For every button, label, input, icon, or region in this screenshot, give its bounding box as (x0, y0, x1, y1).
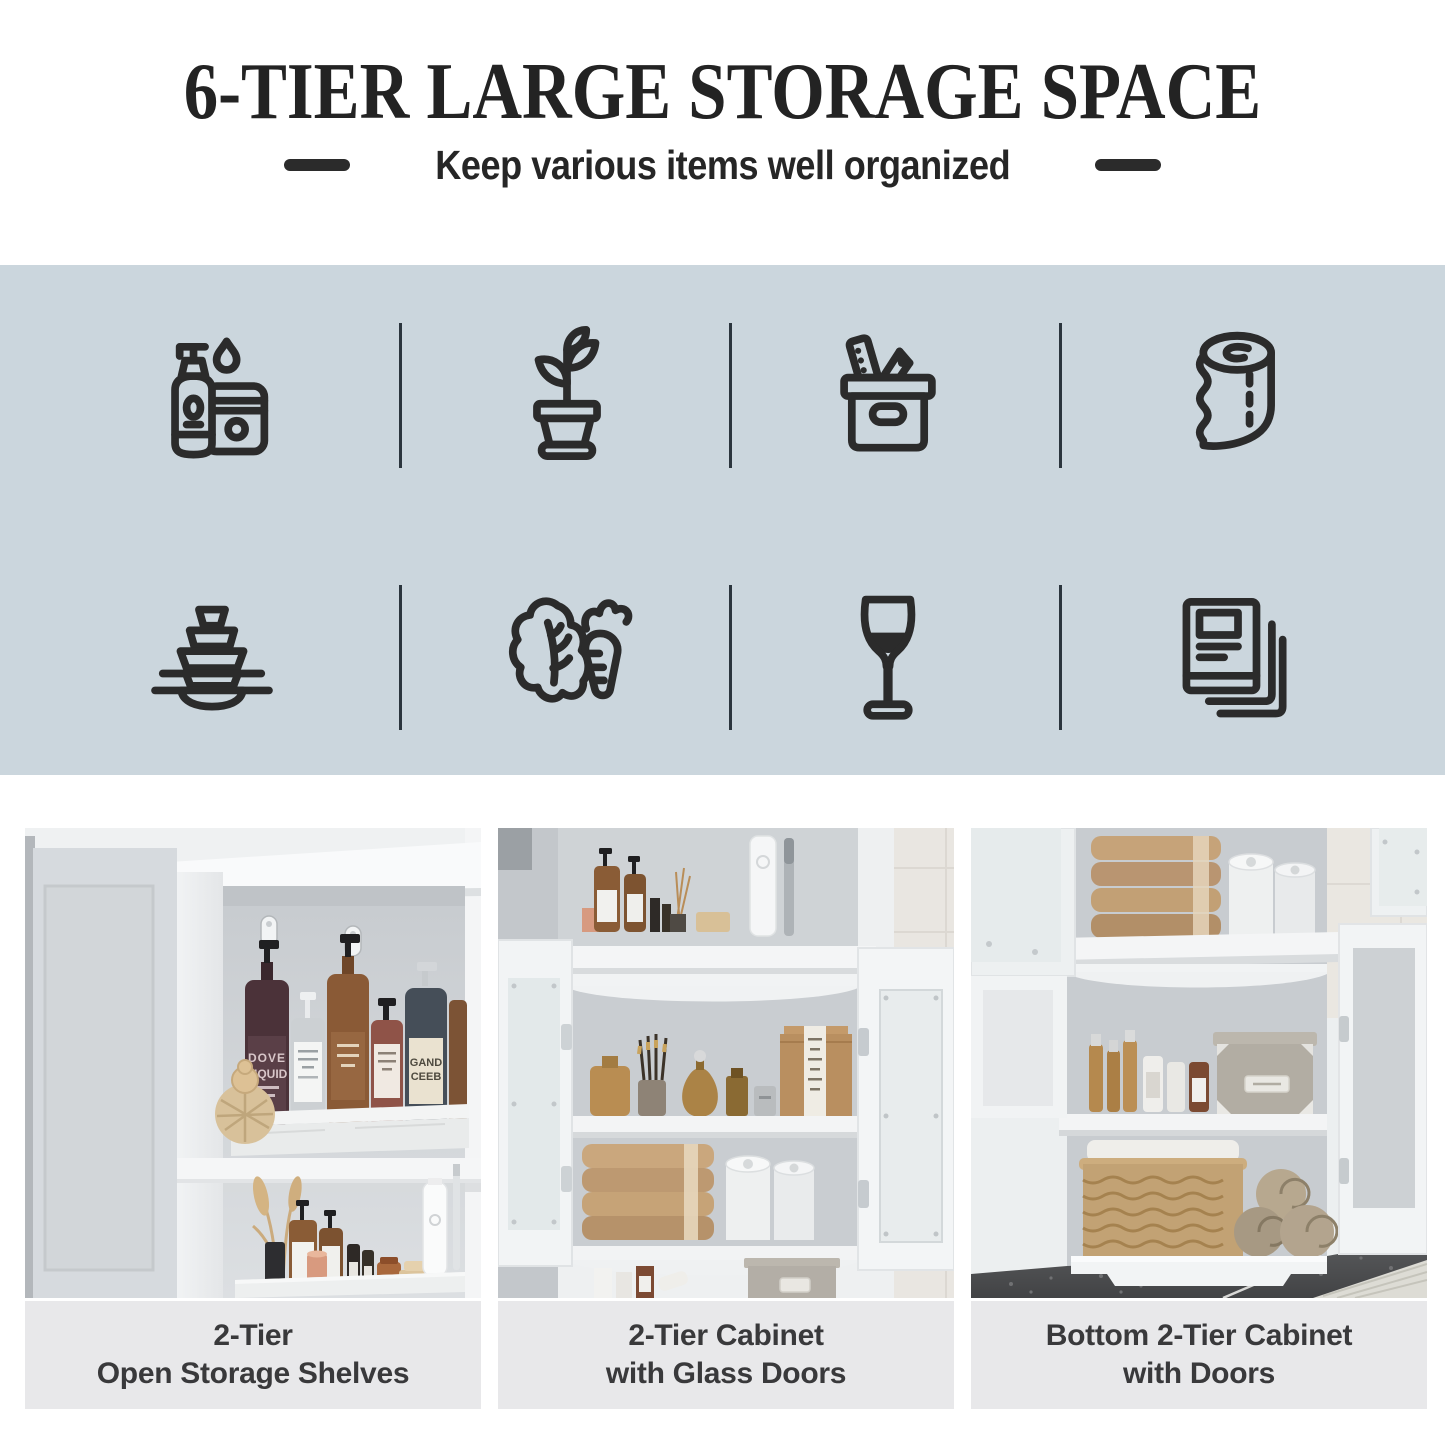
gallery-card-open-shelves: DOVE LIQUID GAND (25, 828, 481, 1409)
column-divider (1059, 323, 1062, 468)
dishes-icon (135, 578, 289, 732)
caption-line: 2-Tier Cabinet (498, 1317, 954, 1355)
column-divider (1059, 585, 1062, 730)
header: 6-TIER LARGE STORAGE SPACE Keep various … (0, 0, 1445, 265)
photo-caption: 2-Tier Cabinet with Glass Doors (498, 1301, 954, 1409)
svg-text:CEEB: CEEB (411, 1071, 442, 1083)
photo-open-storage-shelves: DOVE LIQUID GAND (25, 828, 481, 1298)
svg-text:GAND: GAND (410, 1057, 442, 1069)
caption-line: with Doors (971, 1355, 1427, 1393)
caption-line: 2-Tier (25, 1317, 481, 1355)
wine-glass-icon (811, 578, 965, 732)
gallery-card-glass-doors: 2-Tier Cabinet with Glass Doors (498, 828, 954, 1409)
caption-line: with Glass Doors (498, 1355, 954, 1393)
gallery-card-bottom-cabinet: Bottom 2-Tier Cabinet with Doors (971, 828, 1427, 1409)
photo-bottom-cabinet-doors (971, 828, 1427, 1298)
caption-line: Bottom 2-Tier Cabinet (971, 1317, 1427, 1355)
vegetables-icon (490, 578, 644, 732)
column-divider (399, 585, 402, 730)
photo-caption: Bottom 2-Tier Cabinet with Doors (971, 1301, 1427, 1409)
toilet-paper-icon (1151, 316, 1305, 470)
photo-caption: 2-Tier Open Storage Shelves (25, 1301, 481, 1409)
toiletries-icon (135, 316, 289, 470)
column-divider (399, 323, 402, 468)
column-divider (729, 585, 732, 730)
page-title: 6-TIER LARGE STORAGE SPACE (184, 50, 1261, 134)
feature-icon-band (0, 265, 1445, 775)
potted-plant-icon (490, 316, 644, 470)
page-subtitle: Keep various items well organized (435, 142, 1010, 188)
books-icon (1151, 578, 1305, 732)
left-dash-decoration (284, 159, 350, 171)
photo-cabinet-glass-doors (498, 828, 954, 1298)
storage-box-icon (811, 316, 965, 470)
svg-text:DOVE: DOVE (248, 1051, 286, 1065)
column-divider (729, 323, 732, 468)
subtitle-row: Keep various items well organized (0, 142, 1445, 188)
product-gallery: DOVE LIQUID GAND (0, 828, 1445, 1409)
right-dash-decoration (1095, 159, 1161, 171)
caption-line: Open Storage Shelves (25, 1355, 481, 1393)
